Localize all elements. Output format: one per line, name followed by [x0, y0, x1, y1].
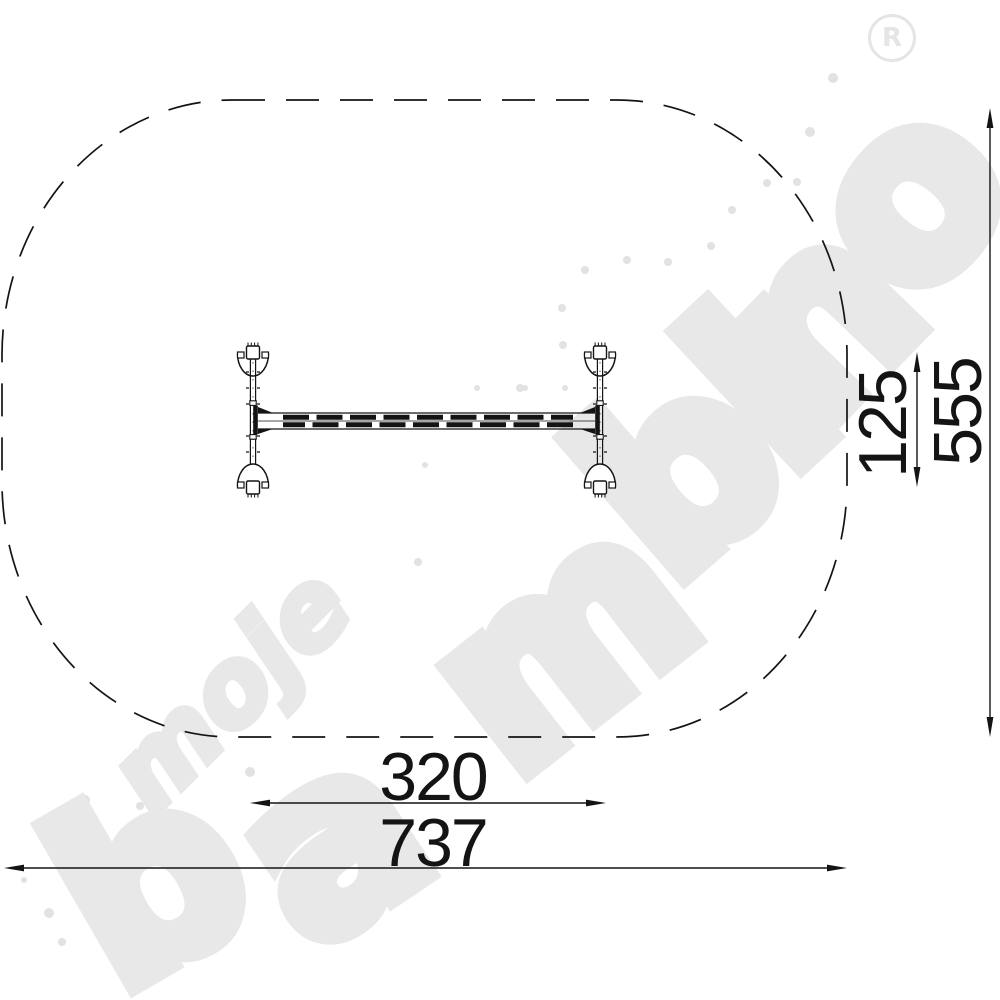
dimension-zone-width: 737 [4, 805, 847, 881]
dimension-label-737: 737 [379, 805, 486, 881]
equipment-beam [258, 413, 595, 429]
dimension-equipment-width: 320 [250, 739, 606, 815]
drawing-canvas: bambino moje R [0, 0, 1000, 1000]
dimension-equipment-depth: 125 [845, 352, 921, 487]
equipment-post-right [579, 343, 616, 498]
dimension-label-555: 555 [920, 358, 996, 465]
equipment-post-left [238, 343, 275, 498]
dimension-zone-depth: 555 [920, 108, 996, 737]
dimension-label-125: 125 [845, 370, 921, 477]
dimension-label-320: 320 [379, 739, 487, 815]
technical-drawing: 320 737 125 555 [0, 0, 1000, 1000]
